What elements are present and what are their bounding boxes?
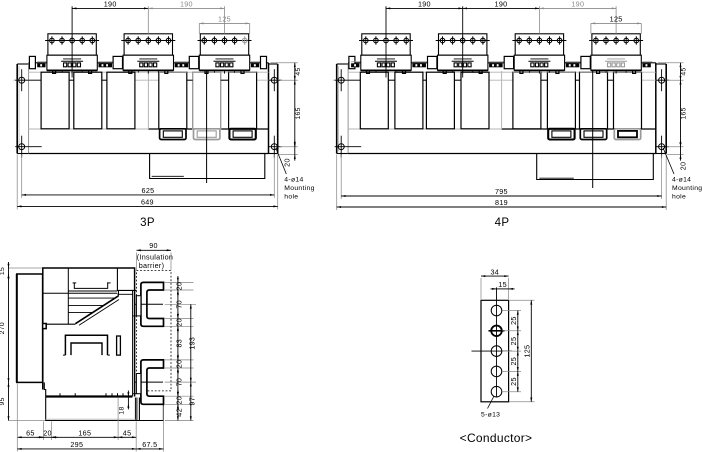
svg-text:hole: hole <box>672 194 686 201</box>
svg-text:70: 70 <box>175 300 184 309</box>
svg-text:165: 165 <box>295 107 302 119</box>
svg-text:25: 25 <box>509 357 518 366</box>
svg-text:25: 25 <box>509 316 518 325</box>
svg-text:20: 20 <box>679 162 688 171</box>
svg-text:165: 165 <box>681 107 688 119</box>
svg-text:42: 42 <box>175 408 184 417</box>
svg-text:20: 20 <box>175 318 184 327</box>
svg-text:819: 819 <box>495 198 508 207</box>
svg-text:18: 18 <box>119 406 126 414</box>
svg-text:4-ø14: 4-ø14 <box>672 177 691 184</box>
svg-text:165: 165 <box>78 429 91 438</box>
svg-text:67.5: 67.5 <box>142 440 157 449</box>
svg-text:190: 190 <box>495 0 508 9</box>
svg-text:190: 190 <box>104 0 117 9</box>
svg-text:25: 25 <box>509 337 518 346</box>
svg-text:15: 15 <box>498 280 507 289</box>
svg-text:125: 125 <box>523 345 532 358</box>
svg-text:83: 83 <box>175 339 184 348</box>
svg-text:95: 95 <box>0 397 6 405</box>
svg-text:Mounting: Mounting <box>672 185 702 192</box>
svg-text:3P: 3P <box>140 217 155 229</box>
svg-text:45: 45 <box>123 429 132 438</box>
svg-text:34: 34 <box>490 267 499 276</box>
svg-text:125: 125 <box>218 15 231 24</box>
svg-text:97: 97 <box>187 397 196 406</box>
svg-text:45: 45 <box>295 67 302 75</box>
svg-text:45: 45 <box>681 67 688 75</box>
svg-text:20: 20 <box>175 282 184 291</box>
svg-text:193: 193 <box>187 337 196 350</box>
svg-text:20: 20 <box>43 429 52 438</box>
svg-text:190: 190 <box>571 0 584 9</box>
svg-text:190: 190 <box>180 0 193 9</box>
svg-text:625: 625 <box>142 186 155 195</box>
svg-text:Mounting: Mounting <box>284 185 314 192</box>
svg-text:20: 20 <box>175 396 184 405</box>
svg-text:270: 270 <box>0 322 6 334</box>
svg-text:5-ø13: 5-ø13 <box>481 412 500 419</box>
svg-text:649: 649 <box>141 198 154 207</box>
svg-text:hole: hole <box>284 194 298 201</box>
svg-text:795: 795 <box>495 187 508 196</box>
svg-text:20: 20 <box>282 158 291 167</box>
svg-text:295: 295 <box>70 440 83 449</box>
svg-text:4-ø14: 4-ø14 <box>284 177 303 184</box>
svg-text:<Conductor>: <Conductor> <box>460 431 533 445</box>
svg-text:25: 25 <box>509 377 518 386</box>
svg-text:70: 70 <box>175 378 184 387</box>
svg-text:125: 125 <box>610 15 623 24</box>
svg-text:barrier): barrier) <box>139 261 165 270</box>
svg-text:90: 90 <box>149 241 158 250</box>
svg-text:4P: 4P <box>495 217 510 229</box>
svg-text:190: 190 <box>418 0 431 9</box>
svg-text:20: 20 <box>175 360 184 369</box>
svg-text:15: 15 <box>0 267 6 275</box>
svg-text:65: 65 <box>26 429 35 438</box>
